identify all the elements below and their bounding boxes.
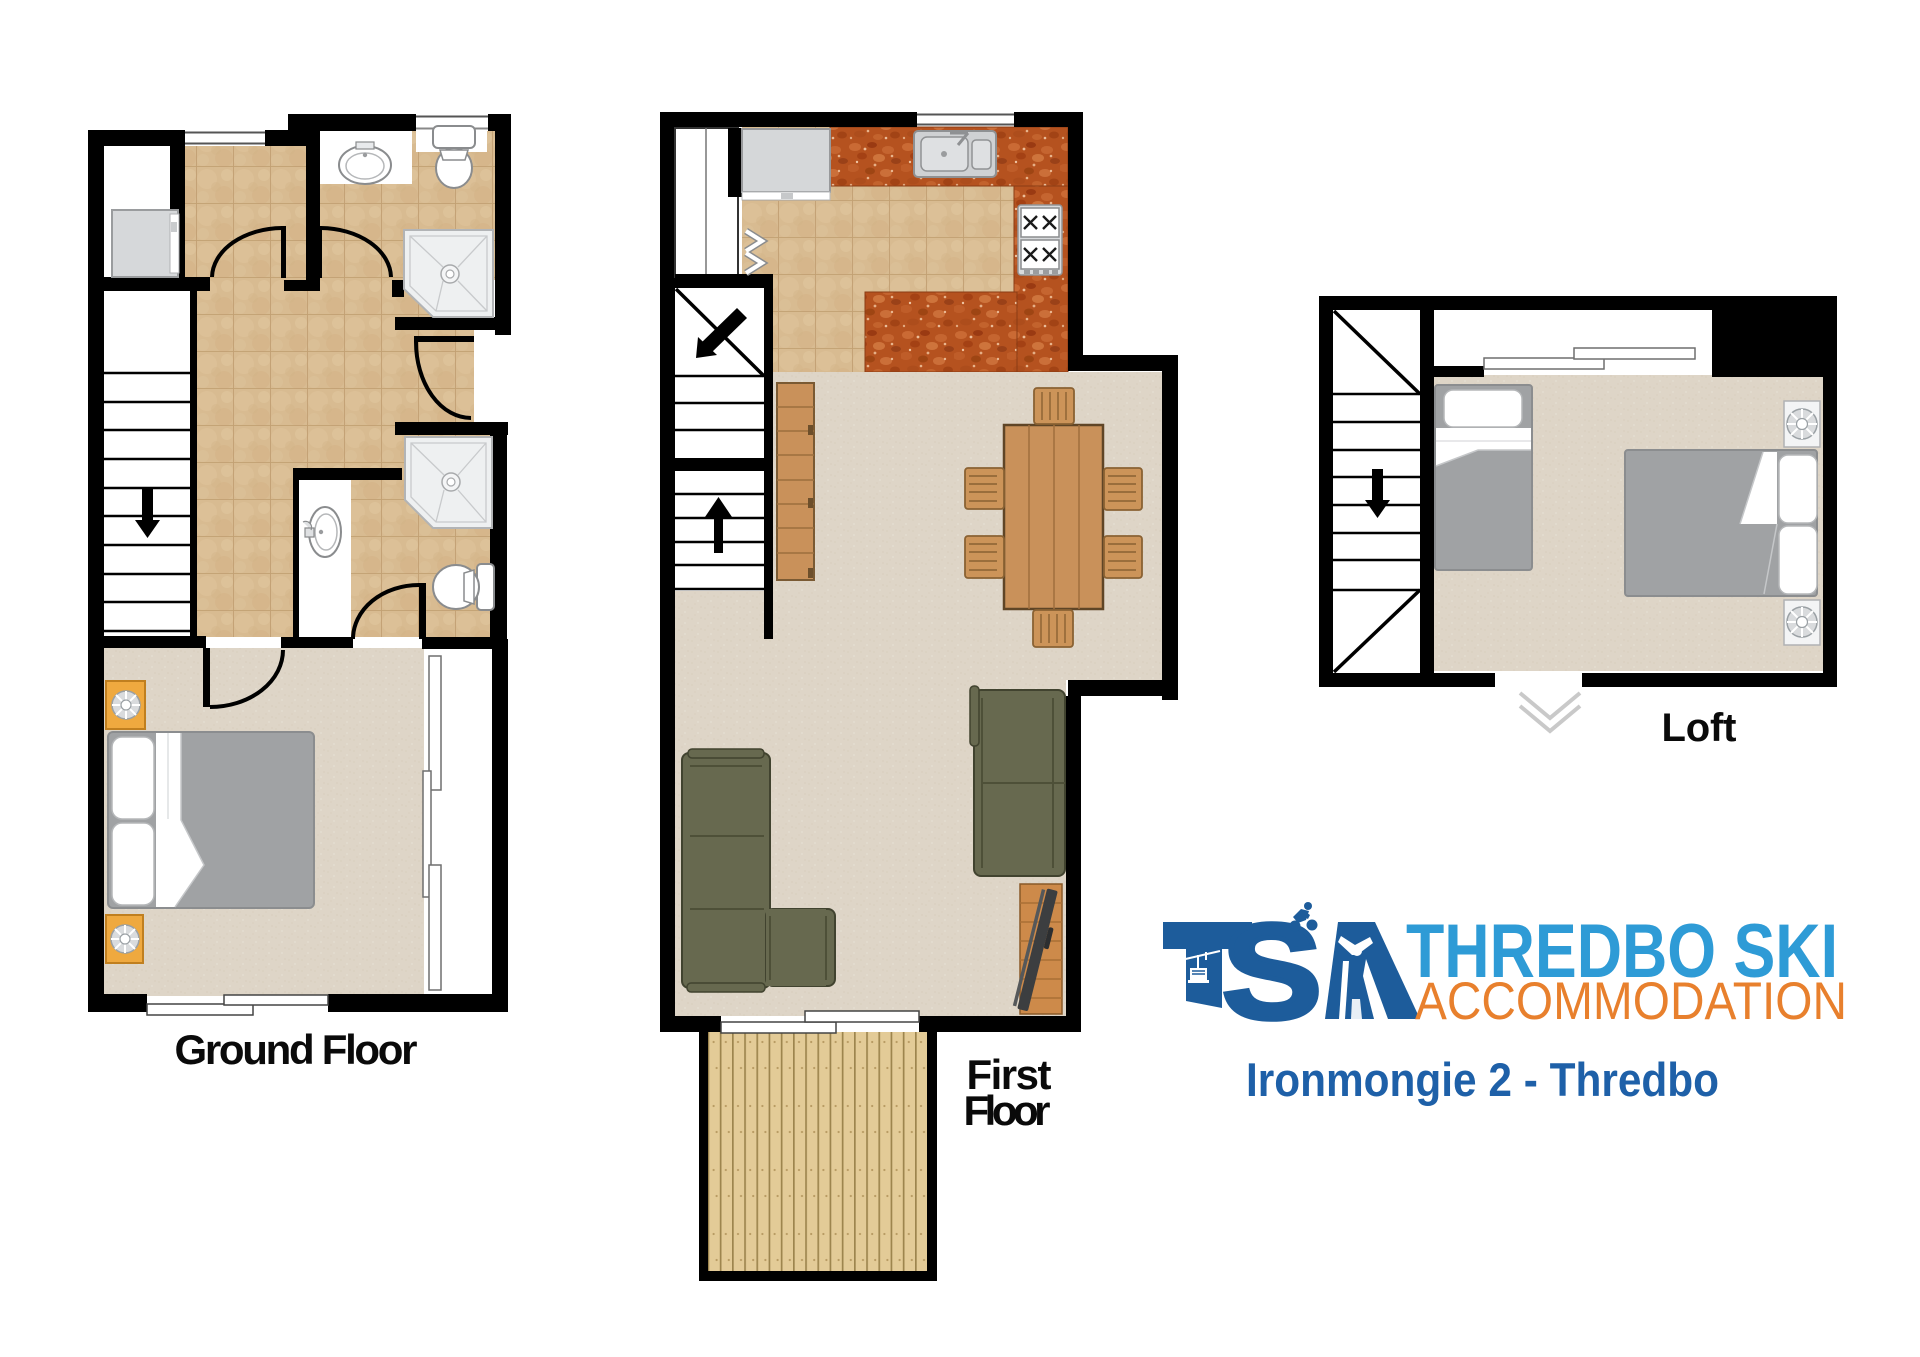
- svg-text:Ground Floor: Ground Floor: [175, 1026, 418, 1073]
- svg-text:Loft: Loft: [1662, 706, 1737, 750]
- svg-text:S: S: [1222, 897, 1322, 1048]
- svg-text:Ironmongie 2 - Thredbo: Ironmongie 2 - Thredbo: [1246, 1053, 1719, 1106]
- svg-text:Floor: Floor: [964, 1087, 1051, 1134]
- svg-text:ACCOMMODATION: ACCOMMODATION: [1415, 972, 1847, 1031]
